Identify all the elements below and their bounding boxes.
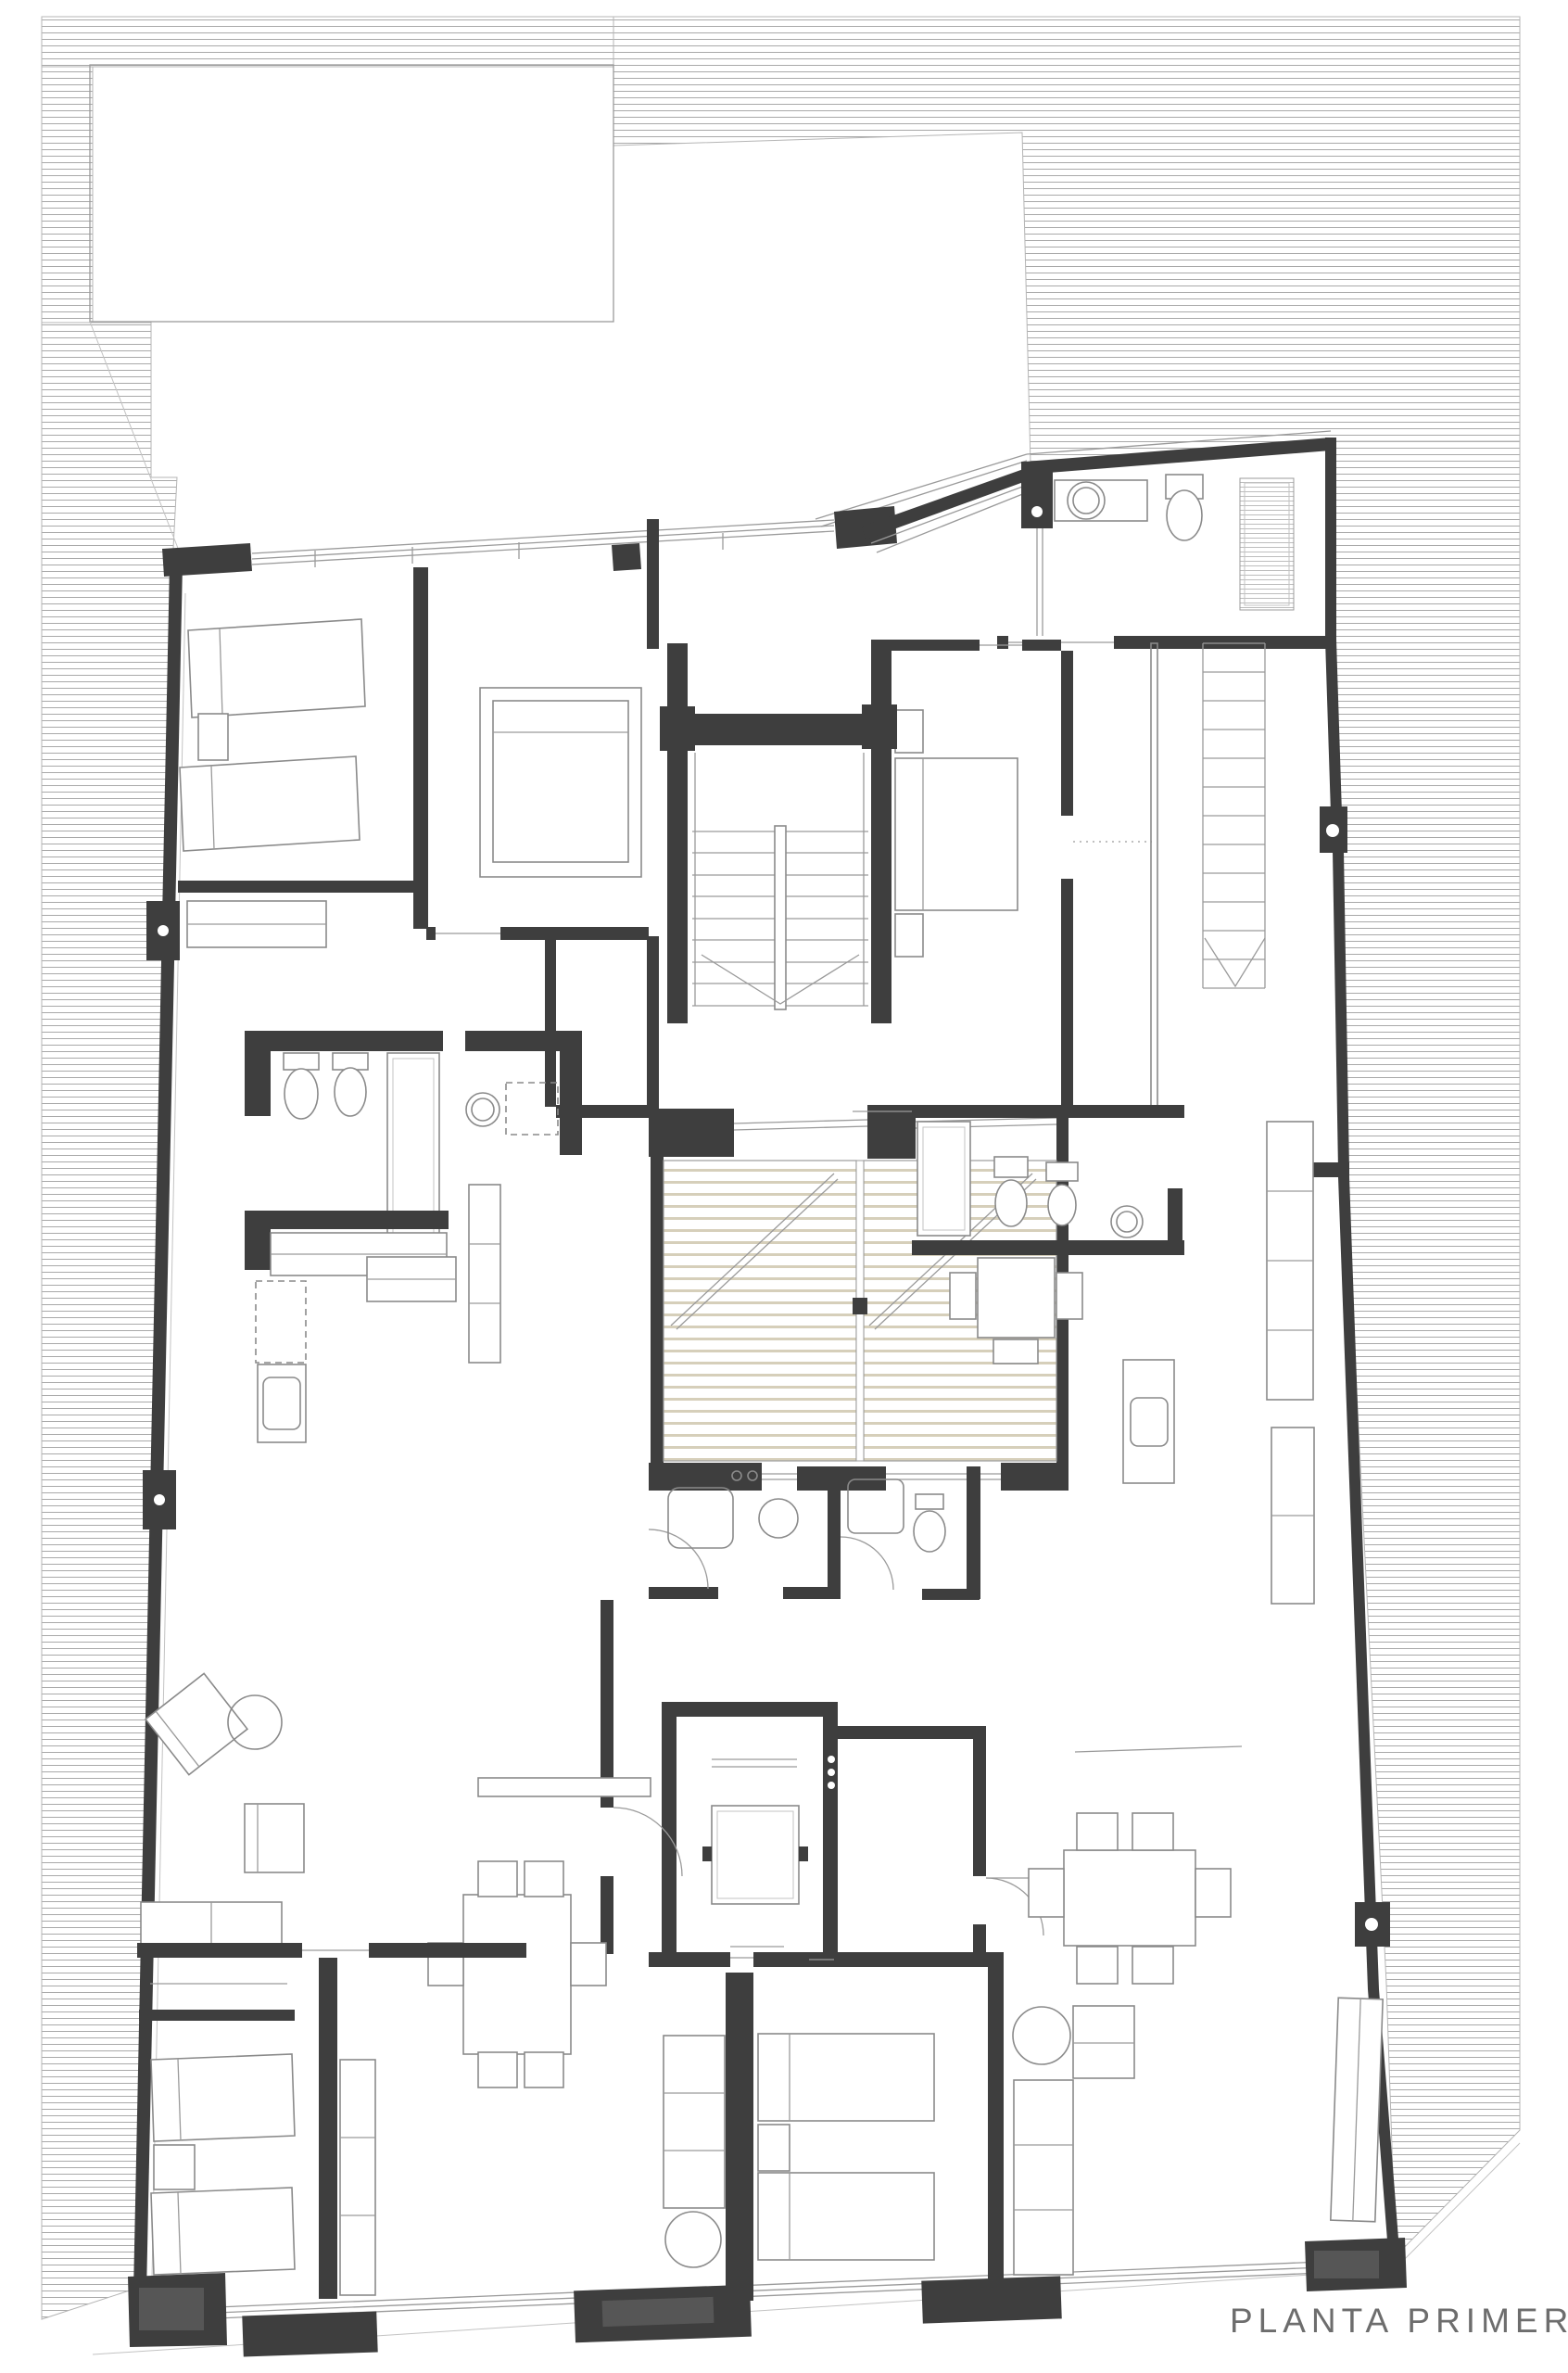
bath-south-wall	[783, 1587, 841, 1599]
chair	[478, 1861, 517, 1897]
door-jamb	[997, 636, 1008, 649]
bath-south-wall	[912, 1240, 1184, 1255]
apartment-left-bath-kitchen	[245, 1031, 582, 1442]
nightstand	[154, 2145, 195, 2189]
pouf	[665, 2212, 721, 2267]
party-wall	[319, 1958, 337, 2299]
patio-south-wall	[797, 1466, 886, 1491]
hall-wall	[647, 519, 659, 649]
wing-south-wall	[1114, 636, 1336, 649]
facade-pier-inner	[139, 2288, 204, 2330]
stairwell-east-wall	[871, 640, 891, 1023]
bedroom-divider-wall	[413, 567, 428, 929]
shower	[917, 1122, 970, 1236]
bath-north-wall	[252, 1031, 443, 1051]
stair-handrail	[775, 826, 786, 1009]
washbasin	[759, 1499, 798, 1538]
shelf-line	[1075, 1746, 1242, 1752]
bed	[758, 2173, 934, 2260]
sofa-chaise	[1014, 2080, 1073, 2275]
door-swing	[841, 1537, 893, 1590]
sofa	[1073, 2006, 1134, 2078]
chair	[1029, 1869, 1064, 1917]
stairwell-north-wall	[669, 714, 891, 745]
facade-pier-inner	[1314, 2251, 1379, 2278]
side-stair	[1203, 643, 1265, 988]
chair	[525, 1861, 563, 1897]
wall	[500, 927, 649, 940]
bed	[188, 619, 365, 717]
facade-pier	[612, 543, 641, 571]
shaft-detail	[828, 1782, 835, 1789]
chair	[993, 1339, 1038, 1364]
sofa-sectional	[664, 2036, 725, 2208]
appliance-dashed	[256, 1281, 306, 1363]
drain-symbol	[154, 1494, 165, 1505]
bath-east-stub	[1168, 1188, 1182, 1255]
nightstand	[758, 2125, 790, 2171]
pouf	[1013, 2007, 1070, 2064]
hatch-left-of-patio	[42, 67, 93, 323]
bath-south-wall	[922, 1589, 980, 1600]
wall	[137, 1943, 302, 1958]
elevator-car	[712, 1806, 799, 1904]
wall	[753, 1952, 809, 1967]
bed	[180, 756, 360, 851]
hatch-right-strip	[1329, 441, 1520, 2256]
toilet	[995, 1180, 1027, 1226]
patio-south-wall	[649, 1463, 762, 1491]
bed	[151, 2188, 295, 2275]
patio-deck	[664, 1161, 856, 1461]
glass-railing	[1151, 643, 1157, 1112]
bathroom-counter	[1055, 480, 1147, 521]
kitchen-wall	[252, 1211, 449, 1229]
bedroom3-north-wall	[1022, 640, 1061, 651]
kitchen-sink-unit	[258, 1364, 306, 1442]
table	[978, 1258, 1055, 1338]
wall	[834, 1952, 1004, 1967]
shaft-detail	[828, 1756, 835, 1763]
wardrobe	[340, 2060, 375, 2295]
shaft-wall-top	[662, 1702, 838, 1717]
nightstand	[198, 714, 228, 760]
patio-south-wall	[1001, 1463, 1069, 1491]
patio-west-wall	[651, 1157, 664, 1463]
door-swing	[649, 1529, 708, 1589]
bedroom-bottom-center	[649, 1952, 1004, 2301]
chair	[1132, 1813, 1173, 1850]
chair	[478, 2052, 517, 2087]
double-bed	[895, 758, 1018, 910]
toilet-tank	[284, 1053, 319, 1070]
chair	[1077, 1947, 1118, 1984]
bath-pier	[245, 1031, 271, 1116]
shaft-detail	[828, 1769, 835, 1776]
stair-arrow	[1205, 938, 1265, 986]
bidet	[335, 1068, 366, 1116]
chair	[1132, 1947, 1173, 1984]
armchair	[145, 1673, 247, 1774]
nightstand	[895, 914, 923, 957]
shower-hatch	[1240, 478, 1294, 610]
patio-court-outline	[90, 65, 613, 322]
corridor-wall	[647, 936, 659, 1109]
toilet-tank	[916, 1494, 943, 1509]
facade-pier	[162, 543, 252, 577]
bed	[151, 2054, 295, 2141]
chair	[525, 2052, 563, 2087]
wing-east-wall	[1325, 438, 1336, 643]
toilet	[1167, 490, 1202, 540]
apartment-topleft	[178, 519, 1018, 1118]
facade-pier-inner	[602, 2297, 714, 2327]
kitchen-pier	[245, 1211, 271, 1270]
dining-table	[463, 1895, 571, 2054]
party-wall	[726, 1973, 753, 2301]
guide-rail	[702, 1846, 712, 1861]
washbasin	[1111, 1206, 1143, 1237]
drain-symbol	[158, 925, 169, 936]
drain-symbol	[1031, 506, 1043, 517]
patio-post	[853, 1298, 867, 1314]
corridor-wall	[545, 938, 556, 1107]
tall-cabinet	[469, 1185, 500, 1363]
bath-wall	[967, 1466, 980, 1599]
closet-wall	[178, 881, 415, 893]
lobby-wall-right	[973, 1739, 986, 1876]
shaft-wall-right	[823, 1702, 838, 1967]
wall	[426, 927, 436, 940]
elevator	[662, 1702, 1043, 1967]
dining-table	[1064, 1850, 1195, 1946]
facade-pier	[242, 2311, 377, 2356]
terrace-wall	[1061, 651, 1073, 816]
bedroom-east-wall	[988, 1967, 1004, 2301]
closet-wall	[139, 2010, 295, 2021]
bidet	[1048, 1185, 1076, 1225]
toilet-tank	[994, 1157, 1028, 1177]
floorplan-canvas: PLANTA PRIMERA	[0, 0, 1568, 2373]
bed	[758, 2034, 934, 2121]
bidet-tank	[1046, 1162, 1078, 1181]
lobby-wall-top	[838, 1726, 986, 1739]
chair	[1056, 1273, 1082, 1319]
chair	[950, 1273, 976, 1319]
armchair	[245, 1804, 304, 1872]
wall	[369, 1943, 526, 1958]
stairwell-west-wall	[667, 643, 688, 1023]
floor-label: PLANTA PRIMERA	[1230, 2302, 1568, 2340]
nightstand	[895, 710, 923, 753]
shaft-wall-left	[662, 1702, 677, 1967]
bath-divider-wall	[828, 1470, 841, 1599]
wall	[649, 1952, 726, 1967]
wing-corner-pier	[1021, 462, 1053, 528]
drain-symbol	[1365, 1918, 1378, 1931]
wing-bathroom	[1055, 475, 1294, 610]
living-east-wall	[601, 1600, 613, 1808]
drain-symbol	[1326, 824, 1339, 837]
hatch-top-right-block	[613, 17, 1520, 463]
main-staircase	[660, 640, 897, 1023]
patio-pier	[867, 1105, 916, 1159]
bath-north-wall	[912, 1105, 1184, 1118]
toilet	[285, 1069, 318, 1119]
stairwell-corner-pier	[660, 706, 695, 751]
chair	[571, 1943, 606, 1986]
chair	[1077, 1813, 1118, 1850]
hatch-top-left-band	[42, 17, 613, 67]
apartment-right-living	[1013, 1746, 1383, 2275]
bath-east-wall	[560, 1031, 582, 1155]
terrace-wall	[1061, 879, 1073, 1110]
patio-pier	[649, 1109, 734, 1157]
bedroom3-north-wall	[891, 640, 980, 651]
sideboard	[478, 1778, 651, 1796]
stairwell-corner-pier	[862, 704, 897, 749]
chair	[1195, 1869, 1231, 1917]
floorplan-drawing: PLANTA PRIMERA	[0, 0, 1568, 2373]
double-bed	[493, 701, 628, 862]
toilet	[914, 1511, 945, 1552]
shower	[668, 1488, 733, 1548]
guide-rail	[799, 1846, 808, 1861]
diagonal-wall	[862, 467, 1029, 539]
